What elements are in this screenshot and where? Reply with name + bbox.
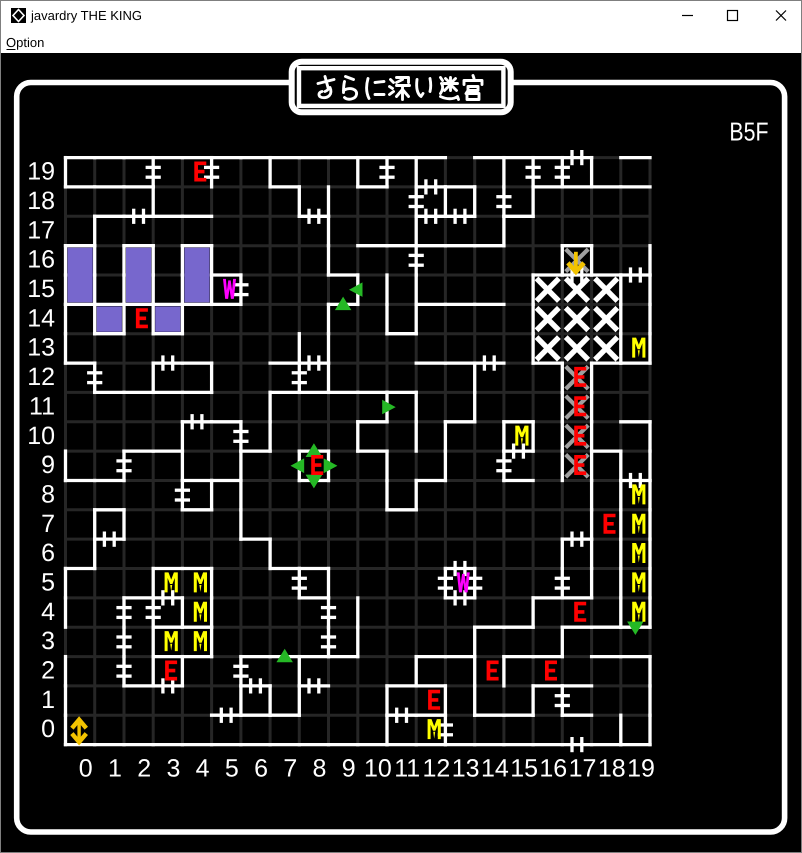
svg-text:18: 18 xyxy=(598,755,626,783)
svg-text:18: 18 xyxy=(27,187,55,215)
svg-text:1: 1 xyxy=(108,755,122,783)
svg-text:15: 15 xyxy=(510,755,538,783)
svg-text:11: 11 xyxy=(29,392,55,420)
svg-text:8: 8 xyxy=(313,755,327,783)
svg-text:12: 12 xyxy=(422,755,450,783)
svg-text:14: 14 xyxy=(481,755,509,783)
svg-text:6: 6 xyxy=(254,755,268,783)
svg-text:16: 16 xyxy=(27,246,55,274)
svg-text:2: 2 xyxy=(41,657,55,685)
svg-text:11: 11 xyxy=(394,755,420,783)
svg-text:Option: Option xyxy=(6,35,44,50)
svg-text:8: 8 xyxy=(41,481,55,509)
svg-text:19: 19 xyxy=(627,755,655,783)
svg-text:5: 5 xyxy=(41,569,55,597)
svg-text:3: 3 xyxy=(166,755,180,783)
svg-text:0: 0 xyxy=(79,755,93,783)
svg-text:6: 6 xyxy=(41,539,55,567)
svg-text:14: 14 xyxy=(27,304,55,332)
svg-text:12: 12 xyxy=(27,363,55,391)
svg-text:3: 3 xyxy=(41,627,55,655)
svg-text:0: 0 xyxy=(41,715,55,743)
svg-text:7: 7 xyxy=(41,510,55,538)
svg-text:19: 19 xyxy=(27,158,55,186)
svg-text:10: 10 xyxy=(27,422,55,450)
svg-text:4: 4 xyxy=(196,755,210,783)
svg-text:13: 13 xyxy=(452,755,480,783)
svg-text:5: 5 xyxy=(225,755,239,783)
svg-text:15: 15 xyxy=(27,275,55,303)
svg-text:17: 17 xyxy=(569,755,597,783)
svg-text:7: 7 xyxy=(283,755,297,783)
svg-text:16: 16 xyxy=(539,755,567,783)
svg-text:13: 13 xyxy=(27,334,55,362)
svg-text:17: 17 xyxy=(27,216,55,244)
svg-text:javardry THE KING: javardry THE KING xyxy=(30,8,142,23)
svg-text:4: 4 xyxy=(41,598,55,626)
svg-text:1: 1 xyxy=(41,686,55,714)
svg-text:B5F: B5F xyxy=(729,117,768,147)
svg-text:2: 2 xyxy=(137,755,151,783)
svg-text:9: 9 xyxy=(342,755,356,783)
svg-text:9: 9 xyxy=(41,451,55,479)
svg-text:10: 10 xyxy=(364,755,392,783)
